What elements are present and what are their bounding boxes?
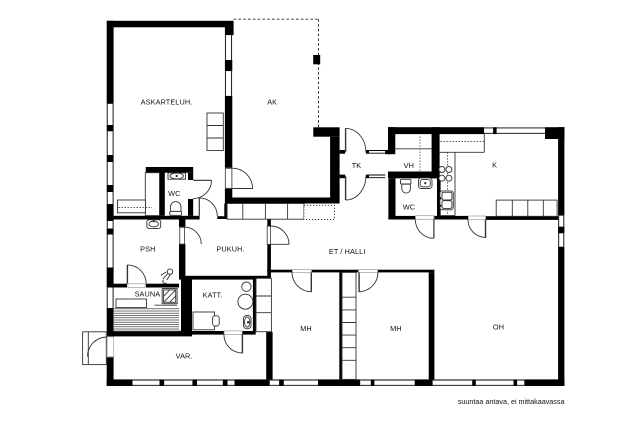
svg-text:ASKARTELUH.: ASKARTELUH. [141,97,193,106]
svg-text:PSH: PSH [140,244,155,253]
svg-text:PUKUH.: PUKUH. [216,244,244,253]
svg-text:VH: VH [404,161,414,170]
svg-text:TK: TK [352,161,362,170]
svg-text:AK: AK [267,98,277,107]
svg-text:SAUNA: SAUNA [135,290,161,299]
svg-text:WC: WC [168,189,180,198]
svg-text:KATT.: KATT. [203,291,223,300]
svg-text:OH: OH [493,323,504,332]
svg-text:K: K [492,160,497,169]
svg-text:WC: WC [403,202,415,211]
svg-text:MH: MH [390,324,402,333]
svg-text:suuntaa antava, ei mittakaavas: suuntaa antava, ei mittakaavassa [458,397,565,406]
svg-text:ET / HALLI: ET / HALLI [329,247,366,256]
svg-text:MH: MH [300,324,312,333]
svg-text:VAR.: VAR. [176,352,193,361]
